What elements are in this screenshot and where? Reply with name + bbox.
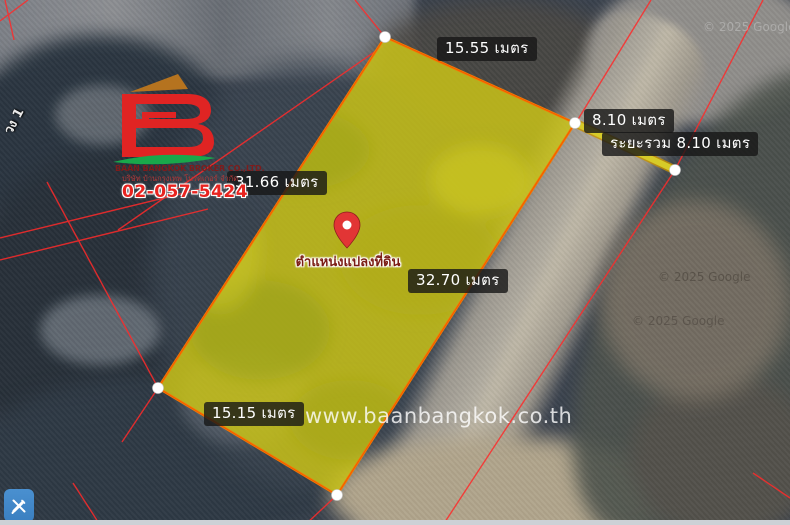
map-view: 15.55 เมตร 8.10 เมตร ระยะรวม 8.10 เมตร 3…: [0, 0, 790, 525]
roof-icon: [130, 74, 188, 92]
vertex-marker[interactable]: [670, 165, 681, 176]
measurement-label-top: 15.55 เมตร: [437, 37, 537, 61]
pin-caption: ตำแหน่งแปลงที่ดิน: [283, 251, 413, 272]
vertex-marker[interactable]: [332, 490, 343, 501]
logo-company-en: BAAN BANGKOK BROKER CO.,LTD.: [115, 164, 265, 173]
map-credit: © 2025 Google: [632, 314, 724, 328]
map-credit: © 2025 Google: [658, 270, 750, 284]
letter-b-icon: [122, 94, 214, 157]
map-credit: © 2025 Google: [703, 20, 790, 34]
edit-tool-button[interactable]: [4, 489, 34, 522]
pencil-cross-icon: [9, 496, 29, 516]
vertex-marker[interactable]: [380, 32, 391, 43]
site-watermark: www.baanbangkok.co.th: [305, 404, 572, 428]
company-logo: BAAN BANGKOK BROKER CO.,LTD. บริษัท บ้าน…: [100, 60, 250, 205]
bottom-bar: [0, 520, 790, 525]
measurement-label-right-total: ระยะรวม 8.10 เมตร: [602, 132, 758, 156]
measurement-label-right-edge: 32.70 เมตร: [408, 269, 508, 293]
logo-phone: 02-057-5424: [122, 182, 248, 202]
measurement-label-right: 8.10 เมตร: [584, 109, 674, 133]
logo-mark: [100, 60, 250, 170]
vertex-marker[interactable]: [153, 383, 164, 394]
vertex-marker[interactable]: [570, 118, 581, 129]
measurement-label-bottom: 15.15 เมตร: [204, 402, 304, 426]
